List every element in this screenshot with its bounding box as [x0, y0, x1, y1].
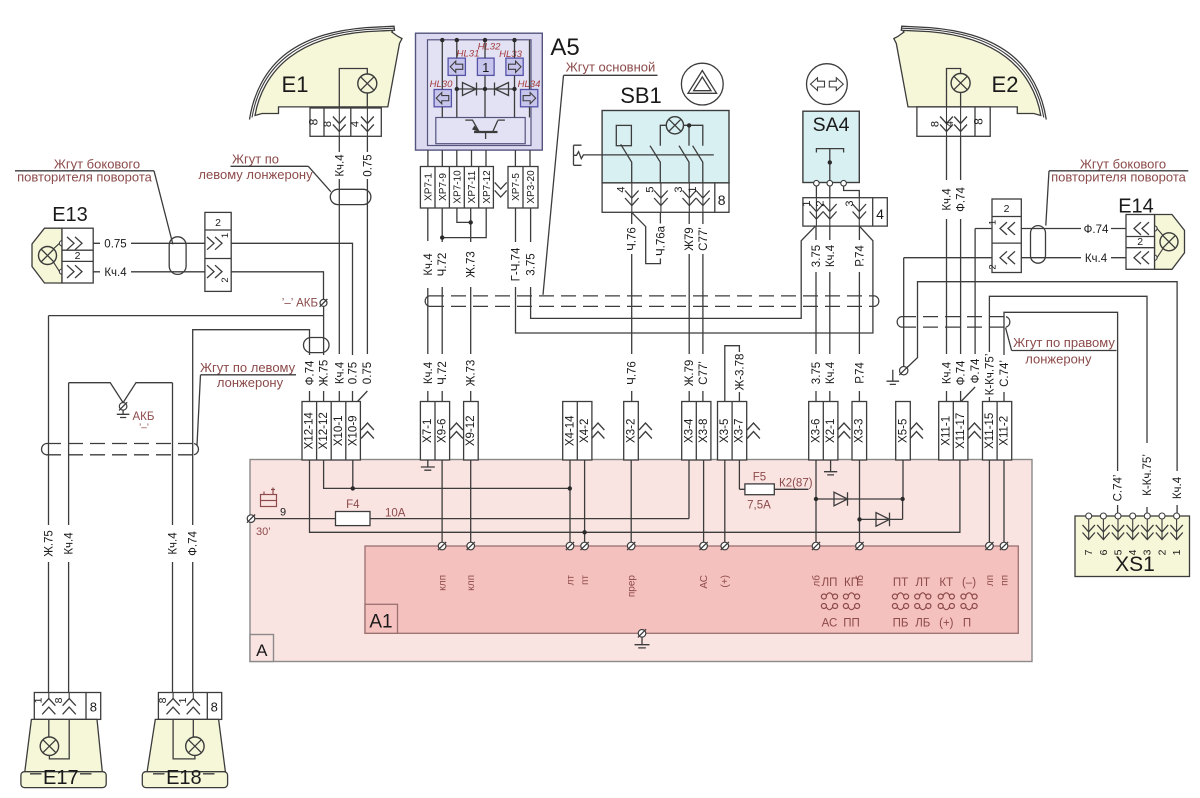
svg-text:Ч.76: Ч.76 [627, 227, 639, 251]
svg-text:ПТ: ПТ [893, 577, 908, 589]
svg-text:А5: А5 [550, 34, 579, 61]
svg-text:ЛП: ЛП [822, 577, 838, 589]
svg-text:АС: АС [822, 618, 838, 630]
svg-text:Кч.4: Кч.4 [942, 188, 954, 211]
svg-text:30’: 30’ [256, 526, 271, 538]
svg-text:Х3-3: Х3-3 [854, 419, 866, 443]
svg-text:3.75: 3.75 [811, 362, 823, 384]
svg-text:XS1: XS1 [1115, 553, 1155, 576]
svg-text:КП: КП [844, 577, 859, 589]
svg-text:8: 8 [211, 700, 218, 715]
svg-text:Кч.4: Кч.4 [1085, 253, 1108, 265]
svg-text:Кч.4: Кч.4 [423, 253, 435, 276]
svg-text:ПБ: ПБ [893, 618, 909, 630]
svg-text:7,5А: 7,5А [747, 500, 771, 512]
svg-text:8: 8 [90, 700, 97, 715]
svg-text:ЛТ: ЛТ [916, 577, 931, 589]
svg-text:АКБ: АКБ [133, 411, 155, 423]
svg-text:1: 1 [220, 233, 231, 238]
svg-text:2: 2 [75, 250, 81, 262]
svg-text:С.74’: С.74’ [1113, 475, 1125, 502]
svg-text:0.75: 0.75 [362, 362, 374, 384]
svg-text:А: А [256, 641, 268, 660]
svg-text:Ф.74: Ф.74 [956, 187, 968, 212]
svg-text:ЛБ: ЛБ [915, 618, 930, 630]
svg-text:E17: E17 [43, 767, 79, 789]
svg-text:Жгут по левому: Жгут по левому [200, 360, 296, 375]
svg-text:7: 7 [1083, 549, 1095, 555]
svg-text:К-Кч.75’: К-Кч.75’ [1142, 454, 1154, 496]
svg-text:ПП: ПП [843, 618, 860, 630]
svg-text:Кч.4: Кч.4 [942, 361, 954, 384]
svg-text:Кч.4: Кч.4 [825, 361, 837, 384]
svg-text:Ж.75: Ж.75 [44, 530, 56, 557]
svg-text:Х12-12: Х12-12 [318, 412, 330, 449]
svg-text:(+): (+) [720, 575, 731, 588]
svg-text:Х5-5: Х5-5 [897, 419, 909, 443]
svg-text:Ч.72: Ч.72 [437, 361, 449, 385]
svg-text:Кч.4: Кч.4 [168, 532, 180, 555]
svg-text:Х10-9: Х10-9 [347, 415, 359, 446]
svg-text:2: 2 [987, 264, 998, 269]
svg-text:Х11-1: Х11-1 [940, 416, 952, 446]
svg-text:E14: E14 [1118, 196, 1154, 218]
svg-text:пт: пт [580, 575, 591, 585]
svg-text:1: 1 [482, 60, 489, 75]
svg-text:пп: пп [999, 575, 1010, 586]
svg-text:Х3-4: Х3-4 [683, 418, 695, 443]
svg-text:8: 8 [930, 121, 942, 127]
svg-text:Х9-6: Х9-6 [437, 419, 449, 443]
svg-text:’–’ АКБ: ’–’ АКБ [282, 298, 318, 310]
svg-text:Р.74: Р.74 [854, 362, 866, 384]
svg-text:E18: E18 [166, 767, 202, 789]
svg-text:К-Кч.75’: К-Кч.75’ [984, 354, 996, 396]
svg-text:Кч.4: Кч.4 [104, 267, 127, 279]
svg-text:ХР3-20: ХР3-20 [526, 170, 537, 204]
svg-text:Кч.4: Кч.4 [334, 361, 346, 384]
svg-text:Кч.4: Кч.4 [334, 154, 346, 177]
svg-text:Кч.4: Кч.4 [825, 244, 837, 267]
svg-text:(–): (–) [962, 577, 976, 589]
svg-text:Х4-14: Х4-14 [564, 415, 576, 446]
svg-text:Жгут по правому: Жгут по правому [1013, 335, 1115, 350]
svg-text:SA4: SA4 [813, 114, 850, 136]
svg-text:Г-Ч.74: Г-Ч.74 [511, 247, 523, 281]
svg-text:3.75: 3.75 [811, 245, 823, 267]
svg-text:Х11-15: Х11-15 [984, 413, 996, 449]
svg-text:Ч.72: Ч.72 [437, 253, 449, 277]
svg-text:Жгут по: Жгут по [232, 152, 279, 167]
svg-text:2: 2 [220, 277, 231, 282]
svg-text:0.75: 0.75 [104, 238, 126, 250]
svg-text:Ж.79: Ж.79 [684, 360, 696, 387]
svg-text:8: 8 [307, 118, 321, 125]
svg-text:4: 4 [616, 186, 628, 192]
svg-text:F4: F4 [346, 499, 360, 511]
svg-text:Ж.75: Ж.75 [319, 360, 331, 387]
svg-text:Ж-3.78: Ж-3.78 [734, 354, 746, 391]
svg-text:2: 2 [814, 200, 826, 206]
svg-text:К2(87): К2(87) [779, 478, 813, 490]
svg-text:ХР7-12: ХР7-12 [482, 170, 493, 204]
svg-text:HL30: HL30 [430, 79, 453, 90]
svg-text:Х3-6: Х3-6 [810, 419, 822, 443]
svg-text:2: 2 [215, 217, 221, 229]
svg-text:лонжерону: лонжерону [217, 375, 284, 390]
svg-text:5: 5 [645, 186, 657, 192]
svg-text:Ф.74: Ф.74 [970, 358, 982, 383]
svg-text:Х3-7: Х3-7 [734, 419, 746, 443]
svg-text:2: 2 [1004, 203, 1010, 215]
svg-text:9: 9 [280, 507, 286, 519]
svg-text:ХР7-11: ХР7-11 [467, 170, 478, 203]
svg-text:’–’: ’–’ [139, 423, 149, 434]
svg-text:повторителя поворота: повторителя поворота [17, 170, 153, 185]
svg-text:С77’: С77’ [698, 227, 710, 251]
svg-text:1: 1 [801, 200, 813, 206]
svg-text:Кч.4: Кч.4 [1172, 476, 1184, 499]
svg-text:левому лонжерону: левому лонжерону [198, 167, 313, 182]
svg-text:Х7-1: Х7-1 [422, 419, 434, 443]
svg-text:ХР7-10: ХР7-10 [453, 170, 464, 204]
svg-text:лт: лт [565, 575, 576, 586]
svg-text:П: П [963, 618, 971, 630]
svg-text:1: 1 [33, 697, 45, 703]
svg-text:8: 8 [322, 121, 334, 127]
svg-text:HL32: HL32 [478, 42, 501, 53]
svg-text:прер: прер [627, 575, 638, 598]
svg-text:1: 1 [177, 697, 189, 703]
svg-text:лб: лб [810, 575, 822, 587]
svg-text:3.75: 3.75 [526, 253, 538, 275]
svg-text:ХР7-5: ХР7-5 [511, 173, 522, 201]
svg-text:Ф.74: Ф.74 [188, 531, 200, 556]
svg-text:4: 4 [876, 206, 884, 222]
svg-text:А1: А1 [369, 612, 392, 633]
svg-text:SB1: SB1 [620, 83, 662, 108]
svg-text:2: 2 [1156, 549, 1168, 555]
svg-text:0.75: 0.75 [362, 154, 374, 176]
svg-text:Х3-8: Х3-8 [698, 419, 710, 443]
svg-text:Х3-5: Х3-5 [719, 419, 731, 443]
svg-text:лп: лп [985, 575, 996, 586]
svg-text:Ф.74: Ф.74 [305, 360, 317, 385]
svg-text:Ф.74: Ф.74 [956, 360, 968, 385]
svg-text:E1: E1 [282, 72, 309, 97]
svg-text:КТ: КТ [939, 577, 953, 589]
svg-text:8: 8 [53, 697, 65, 703]
svg-text:ХР7-9: ХР7-9 [438, 173, 449, 201]
svg-text:Кч.4: Кч.4 [64, 532, 76, 555]
svg-text:HL31: HL31 [457, 49, 480, 60]
svg-text:0.75: 0.75 [348, 362, 360, 384]
svg-text:Х12-14: Х12-14 [304, 412, 316, 450]
svg-text:1: 1 [687, 186, 699, 192]
svg-text:С.74’: С.74’ [999, 360, 1011, 387]
svg-text:6: 6 [1098, 549, 1110, 555]
svg-text:8: 8 [972, 118, 986, 125]
svg-text:Кч.4: Кч.4 [423, 361, 435, 384]
svg-text:4: 4 [350, 121, 362, 127]
svg-text:Ч.76: Ч.76 [627, 361, 639, 385]
svg-text:8: 8 [718, 192, 726, 208]
svg-text:Х3-2: Х3-2 [625, 419, 637, 443]
svg-text:повторителя поворота: повторителя поворота [1051, 170, 1187, 185]
svg-text:Р.74: Р.74 [854, 245, 866, 267]
svg-text:F5: F5 [753, 472, 766, 484]
svg-text:С77’: С77’ [698, 361, 710, 385]
svg-text:ХР7-1: ХР7-1 [423, 173, 434, 201]
svg-text:4: 4 [944, 121, 956, 127]
svg-text:10А: 10А [385, 508, 406, 520]
svg-text:клп: клп [466, 575, 477, 591]
svg-text:Жгут основной: Жгут основной [566, 60, 656, 75]
svg-text:E2: E2 [992, 72, 1019, 97]
svg-text:АС: АС [699, 575, 710, 589]
svg-text:Х2-1: Х2-1 [825, 419, 837, 443]
svg-text:клп: клп [438, 575, 449, 591]
svg-text:3: 3 [673, 186, 685, 192]
svg-text:Х11-17: Х11-17 [955, 413, 967, 449]
svg-text:Х4-2: Х4-2 [579, 419, 591, 443]
svg-text:(+): (+) [939, 618, 954, 630]
svg-text:Х11-2: Х11-2 [999, 416, 1011, 446]
svg-text:Х10-1: Х10-1 [333, 415, 345, 446]
svg-text:E13: E13 [52, 204, 88, 226]
svg-text:3: 3 [844, 200, 856, 206]
svg-text:Ж.73: Ж.73 [466, 360, 478, 387]
svg-text:Ф.74: Ф.74 [1084, 224, 1109, 236]
svg-text:8: 8 [157, 697, 169, 703]
svg-text:2: 2 [1137, 236, 1143, 248]
svg-text:Ж79: Ж79 [684, 227, 696, 250]
svg-text:лонжерону: лонжерону [1025, 352, 1092, 367]
svg-text:Х9-12: Х9-12 [465, 415, 477, 446]
svg-text:HL33: HL33 [499, 49, 522, 60]
svg-text:Ж.73: Ж.73 [466, 251, 478, 278]
svg-text:Ч.76а: Ч.76а [655, 225, 667, 256]
svg-text:1: 1 [987, 220, 998, 225]
svg-text:1: 1 [1171, 549, 1183, 555]
